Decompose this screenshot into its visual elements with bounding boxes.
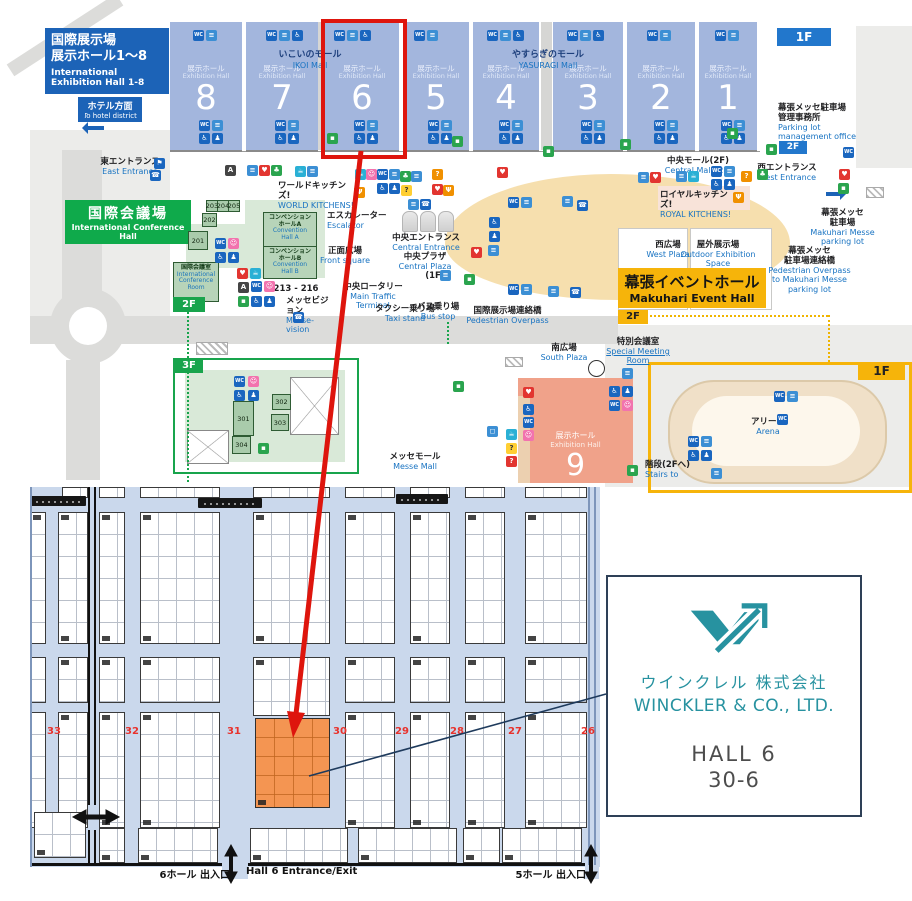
coin-locker-icon: ≡ bbox=[787, 391, 798, 402]
highlighted-booth-30-6[interactable] bbox=[255, 718, 330, 808]
vending-icon: ♣ bbox=[757, 169, 768, 180]
booth-block[interactable] bbox=[525, 512, 587, 644]
aisle-number-27: 27 bbox=[507, 726, 523, 737]
outdoor-space-label: 屋外展示場Outdoor Exhibition Space bbox=[668, 240, 768, 269]
coin-locker-icon: ≡ bbox=[408, 199, 419, 210]
exhibitor-card: ウインクレル 株式会社 WINCKLER & CO., LTD. HALL 6 … bbox=[606, 575, 862, 817]
wall-left-b2 bbox=[94, 830, 96, 863]
flag-icon: ⚑ bbox=[154, 158, 165, 169]
stairs-label: 階段(2Fへ)Stairs to bbox=[645, 460, 705, 479]
world-kitchens-label: ワールドキッチンズ!WORLD KITCHENS! bbox=[278, 181, 354, 210]
room-303: 303 bbox=[271, 414, 289, 431]
yasuragi-corridor bbox=[541, 22, 552, 150]
entrance5-label-jp: 5ホール 出入口 bbox=[510, 866, 586, 881]
coin-locker-icon: ≡ bbox=[389, 169, 400, 180]
cafe-icon: ☕ bbox=[688, 171, 699, 182]
booth-block[interactable] bbox=[34, 812, 86, 858]
floor-badge-1f: 1F bbox=[777, 28, 831, 46]
conference-jp: 国際会議場 bbox=[67, 203, 189, 223]
booth-block[interactable] bbox=[345, 657, 395, 703]
wheelchair-icon: ♿ bbox=[654, 133, 665, 144]
booth-block[interactable] bbox=[30, 512, 46, 644]
coin-locker-icon: ≡ bbox=[212, 120, 223, 131]
left-arrow-head-icon bbox=[76, 122, 88, 134]
legend-en1: International bbox=[51, 68, 163, 79]
map-edge-left bbox=[30, 487, 32, 867]
wheelchair-icon: ♿ bbox=[428, 133, 439, 144]
coin-locker-icon: ≡ bbox=[440, 270, 451, 281]
hotel-jp: ホテル方面 bbox=[82, 99, 138, 112]
wheelchair-icon: ♿ bbox=[593, 30, 604, 41]
royal-kitchens-label: ロイヤルキッチンズ!ROYAL KITCHENS! bbox=[660, 190, 734, 219]
booth-block[interactable] bbox=[140, 487, 220, 498]
coin-locker-icon: ≡ bbox=[411, 171, 422, 182]
booth-number: 30-6 bbox=[608, 768, 860, 792]
room-202: 202 bbox=[202, 213, 217, 227]
restroom-icon: WC bbox=[567, 30, 578, 41]
messe-mall-label: メッセモールMesse Mall bbox=[386, 452, 444, 471]
restroom-icon: WC bbox=[654, 120, 665, 131]
restroom-icon: WC bbox=[688, 436, 699, 447]
locker-icon: ♟ bbox=[622, 386, 633, 397]
wheelchair-icon: ♿ bbox=[215, 252, 226, 263]
smoking-area-icon: ▪ bbox=[258, 443, 269, 454]
booth-block[interactable] bbox=[58, 657, 88, 703]
route-dotted-green2 bbox=[447, 322, 449, 344]
restroom-icon: WC bbox=[251, 281, 262, 292]
entrance-canopy bbox=[438, 211, 454, 232]
conference-hall-box: 国際会議場 International Conference Hall bbox=[65, 200, 191, 244]
smoking-area-icon: ▪ bbox=[766, 144, 777, 155]
zone-label bbox=[396, 494, 448, 504]
restroom-icon: WC bbox=[774, 391, 785, 402]
booth-block[interactable] bbox=[345, 512, 395, 644]
coin-locker-icon: ≡ bbox=[441, 120, 452, 131]
right-ground bbox=[856, 26, 912, 168]
cafe-icon: ☕ bbox=[355, 169, 366, 180]
wheelchair-icon: ♿ bbox=[499, 133, 510, 144]
entrance6-label-jp: 6ホール 出入口 bbox=[158, 866, 230, 881]
booth-block[interactable] bbox=[99, 487, 125, 498]
booth-block[interactable] bbox=[30, 712, 46, 828]
event-hall-en: Makuhari Event Hall bbox=[618, 292, 766, 305]
yasuragi-mall-label: やすらぎのモールYASURAGI Mall bbox=[508, 50, 588, 70]
aisle-number-28: 28 bbox=[449, 726, 465, 737]
intl-conference-room: 国際会議室InternationalConferenceRoom bbox=[173, 262, 219, 302]
coin-locker-icon: ≡ bbox=[288, 120, 299, 131]
booth-block[interactable] bbox=[140, 712, 220, 828]
aisle-number-31: 31 bbox=[226, 726, 242, 737]
legend-en2: Exhibition Hall 1-8 bbox=[51, 78, 163, 89]
information-icon: ? bbox=[506, 456, 517, 467]
room-301: 301 bbox=[233, 401, 254, 436]
locker-icon: ♟ bbox=[389, 183, 400, 194]
booth-block[interactable] bbox=[58, 512, 88, 644]
ramp-hatch bbox=[505, 357, 523, 367]
aisle-number-29: 29 bbox=[394, 726, 410, 737]
road-south bbox=[66, 360, 100, 480]
booth-block[interactable] bbox=[502, 828, 582, 863]
central-entrance-label: 中央エントランスCentral Entrance bbox=[388, 233, 464, 252]
booth-block[interactable] bbox=[30, 657, 46, 703]
event-hall-jp: 幕張イベントホール bbox=[618, 271, 766, 292]
information-icon: ? bbox=[506, 443, 517, 454]
wheelchair-icon: ♿ bbox=[688, 450, 699, 461]
restaurant-icon: Ψ bbox=[443, 185, 454, 196]
convention-hall-a: コンベンションホールAConventionHall A bbox=[263, 212, 317, 249]
legend-box: 国際展示場 展示ホール1～8 International Exhibition … bbox=[45, 28, 169, 94]
restroom-icon: WC bbox=[234, 376, 245, 387]
entrance5-gap bbox=[585, 866, 599, 879]
makuhari-parking-label: 幕張メッセ駐車場Makuhari Messeparking lot bbox=[800, 208, 885, 247]
aed-icon: ♥ bbox=[839, 169, 850, 180]
restroom-icon: WC bbox=[711, 166, 722, 177]
locker-icon: ♟ bbox=[441, 133, 452, 144]
wheelchair-icon: ♿ bbox=[275, 133, 286, 144]
booth-block[interactable] bbox=[345, 487, 395, 498]
booth-block[interactable] bbox=[358, 828, 457, 863]
conference-en: International Conference Hall bbox=[67, 223, 189, 241]
coin-locker-icon: ≡ bbox=[521, 197, 532, 208]
booth-block[interactable] bbox=[410, 512, 450, 644]
convention-hall-b: コンベンションホールBConventionHall B bbox=[263, 246, 317, 279]
central-plaza-label: 中央プラザCentral Plaza bbox=[392, 252, 458, 271]
coin-locker-icon: ≡ bbox=[622, 368, 633, 379]
parking-office-label: 幕張メッセ駐車場管理事務所Parking lotmanagement offic… bbox=[778, 103, 866, 142]
floor-badge-1f: 1F bbox=[858, 362, 905, 380]
locker-icon: ♟ bbox=[512, 133, 523, 144]
aisle-number-32: 32 bbox=[124, 726, 140, 737]
wheelchair-icon: ♿ bbox=[513, 30, 524, 41]
restroom-icon: WC bbox=[275, 120, 286, 131]
nursing-room-icon: ☺ bbox=[248, 376, 259, 387]
west-crosswalk bbox=[866, 187, 884, 198]
coin-locker-icon: ≡ bbox=[594, 120, 605, 131]
wheelchair-icon: ♿ bbox=[251, 296, 262, 307]
restroom-icon: WC bbox=[843, 147, 854, 158]
atm-icon: A bbox=[238, 282, 249, 293]
bus-stop-label: バス乗り場Bus stop bbox=[413, 302, 463, 321]
restaurant-icon: Ψ bbox=[733, 192, 744, 203]
information-icon: ? bbox=[401, 185, 412, 196]
route-dotted-yellow bbox=[650, 315, 828, 317]
restroom-icon: WC bbox=[266, 30, 277, 41]
restroom-icon: WC bbox=[715, 30, 726, 41]
booth-block[interactable] bbox=[463, 828, 500, 863]
smoking-area-icon: ▪ bbox=[464, 274, 475, 285]
wheelchair-icon: ♿ bbox=[711, 179, 722, 190]
legend-jp1: 国際展示場 bbox=[51, 33, 163, 49]
coin-locker-icon: ≡ bbox=[711, 468, 722, 479]
wheelchair-icon: ♿ bbox=[581, 133, 592, 144]
cafe-icon: ☕ bbox=[250, 268, 261, 279]
special-meeting-label: 特別会議室Special Meeting Room bbox=[594, 337, 682, 366]
booth-block[interactable] bbox=[138, 828, 218, 863]
floor-badge-2f: 2F bbox=[779, 141, 807, 154]
exh-overpass-label: 国際展示場連絡橋Pedestrian Overpass bbox=[460, 306, 555, 325]
hall9-label-jp: 展示ホール bbox=[518, 430, 633, 441]
coin-locker-icon: ≡ bbox=[279, 30, 290, 41]
aed-icon: ♥ bbox=[259, 165, 270, 176]
crosswalk bbox=[196, 342, 228, 355]
coin-locker-icon: ≡ bbox=[580, 30, 591, 41]
room-302: 302 bbox=[272, 394, 291, 410]
left-arrow-icon bbox=[86, 126, 104, 130]
booth-block[interactable] bbox=[525, 712, 587, 828]
room-205: 205 bbox=[228, 200, 240, 212]
restroom-icon: WC bbox=[414, 30, 425, 41]
hall6-highlight-rect bbox=[321, 19, 407, 159]
floor-badge-2f: 2F bbox=[618, 310, 648, 324]
coin-locker-icon: ≡ bbox=[724, 166, 735, 177]
floor-badge-3f: 3F bbox=[175, 358, 203, 373]
legend-jp2: 展示ホール1～8 bbox=[51, 49, 163, 65]
wheelchair-icon: ♿ bbox=[609, 386, 620, 397]
winckler-logo bbox=[686, 597, 782, 657]
phone-icon: ☎ bbox=[570, 287, 581, 298]
restroom-icon: WC bbox=[609, 400, 620, 411]
restroom-icon: WC bbox=[199, 120, 210, 131]
locker-icon: ♟ bbox=[212, 133, 223, 144]
entrance6-label-en: Hall 6 Entrance/Exit bbox=[246, 866, 357, 877]
coin-locker-icon: ≡ bbox=[701, 436, 712, 447]
room-304: 304 bbox=[232, 436, 251, 454]
coin-locker-icon: ≡ bbox=[206, 30, 217, 41]
booth-block[interactable] bbox=[99, 712, 125, 828]
wheelchair-icon: ♿ bbox=[199, 133, 210, 144]
range-213-label: 213 - 216 bbox=[272, 284, 320, 294]
hotel-en: To hotel district bbox=[82, 112, 138, 120]
coin-locker-icon: ≡ bbox=[548, 286, 559, 297]
booth-block[interactable] bbox=[465, 512, 505, 644]
booth-block[interactable] bbox=[410, 712, 450, 828]
locker-icon: ♟ bbox=[489, 231, 500, 242]
room-201: 201 bbox=[188, 231, 208, 250]
company-name-en: WINCKLER & CO., LTD. bbox=[608, 696, 860, 716]
roundabout-center bbox=[69, 307, 107, 345]
entrance-canopy bbox=[420, 211, 436, 232]
wall-left-a2 bbox=[88, 830, 90, 863]
wheelchair-icon: ♿ bbox=[292, 30, 303, 41]
locker-icon: ♟ bbox=[248, 390, 259, 401]
nursing-room-icon: ☺ bbox=[622, 400, 633, 411]
nursing-room-icon: ☺ bbox=[366, 169, 377, 180]
wheelchair-icon: ♿ bbox=[489, 217, 500, 228]
restroom-icon: WC bbox=[215, 238, 226, 249]
coin-locker-icon: ≡ bbox=[521, 284, 532, 295]
coin-locker-icon: ≡ bbox=[247, 165, 258, 176]
booth-block[interactable] bbox=[253, 657, 330, 716]
phone-icon: ☎ bbox=[150, 170, 161, 181]
locker-icon: ♟ bbox=[228, 252, 239, 263]
aed-icon: ♥ bbox=[432, 184, 443, 195]
smoking-area-icon: ▪ bbox=[727, 128, 738, 139]
locker-icon: ♟ bbox=[724, 179, 735, 190]
smoking-area-icon: ▪ bbox=[838, 183, 849, 194]
wheelchair-icon: ♿ bbox=[377, 183, 388, 194]
booth-block[interactable] bbox=[345, 712, 395, 828]
smoking-area-icon: ▪ bbox=[620, 139, 631, 150]
phone-icon: ☎ bbox=[420, 199, 431, 210]
south-plaza-label: 南広場South Plaza bbox=[538, 343, 590, 362]
coin-locker-icon: ≡ bbox=[667, 120, 678, 131]
booth-hall: HALL 6 bbox=[608, 742, 860, 766]
closed-area bbox=[290, 377, 339, 435]
aisle-number-30: 30 bbox=[332, 726, 348, 737]
restroom-icon: WC bbox=[487, 30, 498, 41]
entrance-canopy bbox=[402, 211, 418, 232]
restaurant-icon: Ψ bbox=[354, 187, 365, 198]
coin-locker-icon: ≡ bbox=[660, 30, 671, 41]
restroom-icon: WC bbox=[647, 30, 658, 41]
booth-block[interactable] bbox=[99, 512, 125, 644]
coin-locker-icon: ≡ bbox=[307, 166, 318, 177]
vending-icon: ♣ bbox=[400, 171, 411, 182]
booth-block[interactable] bbox=[465, 712, 505, 828]
smoking-area-icon: ▪ bbox=[627, 465, 638, 476]
map-edge-a bbox=[588, 487, 590, 865]
event-hall-box: 幕張イベントホール Makuhari Event Hall bbox=[618, 268, 766, 308]
coin-locker-icon: ≡ bbox=[728, 30, 739, 41]
makuhari-messe-booth-map: コンベンションホールAConventionHall A コンベンションホールBC… bbox=[0, 0, 912, 901]
restroom-icon: WC bbox=[581, 120, 592, 131]
coin-locker-icon: ≡ bbox=[638, 172, 649, 183]
booth-block[interactable] bbox=[525, 487, 587, 498]
booth-block[interactable] bbox=[140, 657, 220, 703]
coin-locker-icon: ≡ bbox=[512, 120, 523, 131]
phone-icon: ☎ bbox=[293, 312, 304, 323]
booth-block[interactable] bbox=[250, 828, 348, 863]
booth-block[interactable] bbox=[410, 657, 450, 703]
aisle-number-26: 26 bbox=[580, 726, 596, 737]
information-icon: ? bbox=[741, 171, 752, 182]
aed-icon: ♥ bbox=[523, 387, 534, 398]
aed-icon: ♥ bbox=[237, 268, 248, 279]
aed-icon: ♥ bbox=[497, 167, 508, 178]
messe-vision-icon: ◻ bbox=[487, 426, 498, 437]
restroom-icon: WC bbox=[377, 169, 388, 180]
nursing-room-icon: ☺ bbox=[523, 430, 534, 441]
front-square-label: 正面広場Front square bbox=[315, 246, 375, 265]
smoking-area-icon: ▪ bbox=[453, 381, 464, 392]
wall-left-a bbox=[88, 487, 90, 805]
zone-label bbox=[198, 498, 262, 508]
booth-block[interactable] bbox=[465, 487, 505, 498]
booth-block[interactable] bbox=[58, 712, 88, 828]
booth-block[interactable] bbox=[140, 512, 220, 644]
closed-area bbox=[187, 430, 229, 464]
coin-locker-icon: ≡ bbox=[427, 30, 438, 41]
smoking-area-icon: ▪ bbox=[452, 136, 463, 147]
coin-locker-icon: ≡ bbox=[488, 245, 499, 256]
information-icon: ? bbox=[432, 169, 443, 180]
route-dotted-yellow2 bbox=[828, 315, 830, 362]
route-dotted-green bbox=[187, 312, 189, 482]
locker-icon: ♟ bbox=[288, 133, 299, 144]
wheelchair-icon: ♿ bbox=[523, 404, 534, 415]
smoking-area-icon: ▪ bbox=[543, 146, 554, 157]
cafe-icon: ☕ bbox=[506, 429, 517, 440]
booth-block[interactable] bbox=[525, 657, 587, 703]
atm-icon: A bbox=[225, 165, 236, 176]
vending-icon: ♣ bbox=[271, 165, 282, 176]
restroom-icon: WC bbox=[523, 417, 534, 428]
nursing-room-icon: ☺ bbox=[264, 281, 275, 292]
aed-icon: ♥ bbox=[471, 247, 482, 258]
phone-icon: ☎ bbox=[577, 200, 588, 211]
restroom-icon: WC bbox=[508, 197, 519, 208]
restroom-icon: WC bbox=[508, 284, 519, 295]
locker-icon: ♟ bbox=[264, 296, 275, 307]
smoking-area-icon: ▪ bbox=[238, 296, 249, 307]
restroom-icon: WC bbox=[428, 120, 439, 131]
restroom-icon: WC bbox=[193, 30, 204, 41]
company-name-jp: ウインクレル 株式会社 bbox=[608, 669, 860, 693]
cafe-icon: ☕ bbox=[295, 166, 306, 177]
booth-block[interactable] bbox=[253, 487, 330, 498]
aisle-number-33: 33 bbox=[46, 726, 62, 737]
restroom-icon: WC bbox=[777, 414, 788, 425]
booth-block[interactable] bbox=[253, 512, 330, 644]
escalator-label: エスカレーターEscalator bbox=[327, 211, 389, 230]
locker-icon: ♟ bbox=[594, 133, 605, 144]
coin-locker-icon: ≡ bbox=[676, 171, 687, 182]
map-edge-b bbox=[594, 487, 596, 865]
restroom-icon: WC bbox=[499, 120, 510, 131]
nursing-room-icon: ☺ bbox=[228, 238, 239, 249]
booth-block[interactable] bbox=[99, 657, 125, 703]
locker-icon: ♟ bbox=[701, 450, 712, 461]
floor-badge-2f: 2F bbox=[173, 297, 205, 312]
booth-block[interactable] bbox=[465, 657, 505, 703]
coin-locker-icon: ≡ bbox=[562, 196, 573, 207]
wheelchair-icon: ♿ bbox=[234, 390, 245, 401]
parking-overpass-label: 幕張メッセ駐車場連絡橋Pedestrian Overpassto Makuhar… bbox=[757, 246, 862, 294]
hall9-number: 9 bbox=[518, 449, 633, 482]
coin-locker-icon: ≡ bbox=[500, 30, 511, 41]
wall-left-b bbox=[94, 487, 96, 805]
zone-label bbox=[30, 496, 86, 506]
booth-block[interactable] bbox=[99, 828, 125, 863]
aed-icon: ♥ bbox=[650, 172, 661, 183]
locker-icon: ♟ bbox=[667, 133, 678, 144]
hotel-direction-box: ホテル方面 To hotel district bbox=[78, 97, 142, 122]
